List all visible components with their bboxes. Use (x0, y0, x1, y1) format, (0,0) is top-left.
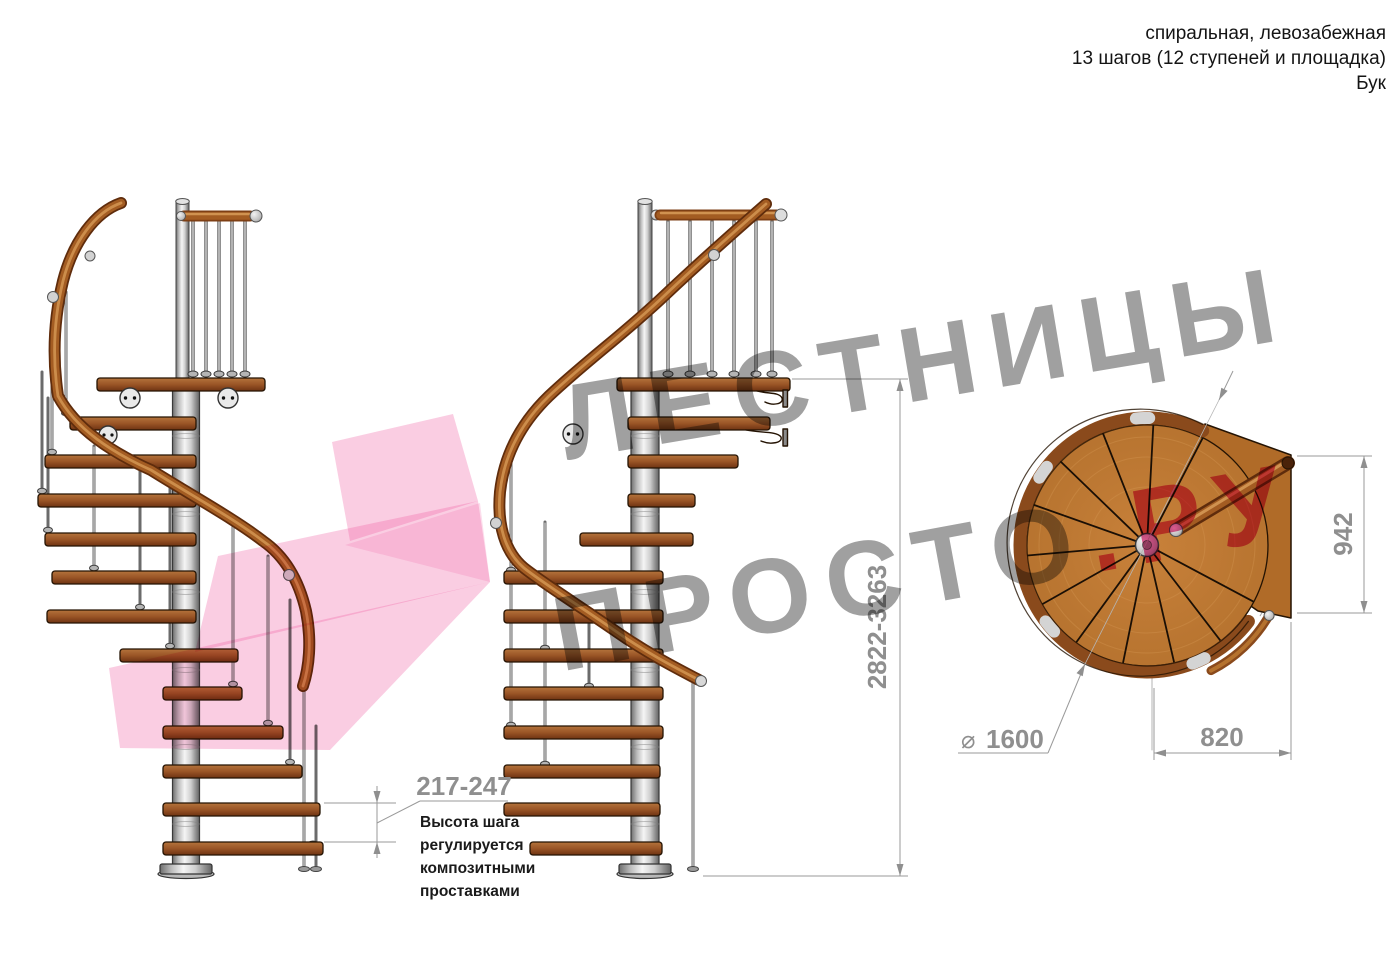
spec-steps: 13 шагов (12 ступеней и площадка) (1072, 46, 1386, 71)
spec-type: спиральная, левозабежная (1072, 21, 1386, 46)
drawing-sheet: 2822-3263 217-247 Высота шага регулирует… (0, 0, 1400, 975)
spec-material: Бук (1072, 71, 1386, 96)
spec-header: спиральная, левозабежная 13 шагов (12 ст… (1072, 21, 1386, 96)
